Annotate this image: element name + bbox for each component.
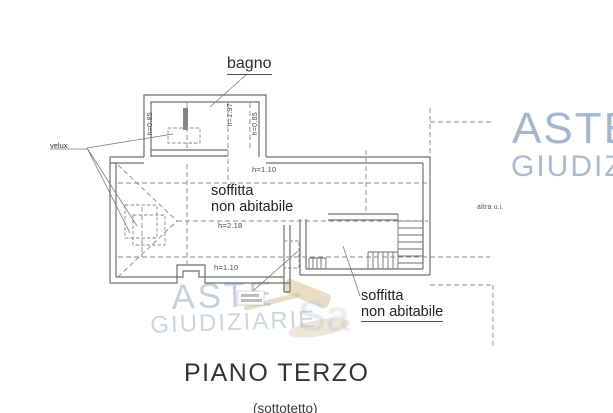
soffitta-main-line2: non abitabile <box>211 199 293 215</box>
velux-label: velux <box>50 141 68 150</box>
bagno-label: bagno <box>227 55 272 75</box>
dim-bagno-left: h=0.85 <box>147 112 154 135</box>
soffitta-right-label: soffitta non abitabile <box>361 288 443 322</box>
dim-attic-center: h=2.18 <box>218 221 242 230</box>
dim-bagno-center: h=1.97 <box>227 103 234 126</box>
dim-upper-right: h=1.10 <box>252 165 276 174</box>
altra-ui-label: altra u.i. <box>477 204 504 211</box>
dim-attic-bottom: h=1.10 <box>214 263 238 272</box>
floor-subtitle: (sottotetto) <box>253 401 318 413</box>
staircase <box>309 214 423 269</box>
floorplan-page: ASTE GIUDIZIARIE ASTE GIUDIZIARIE Sa <box>0 0 613 413</box>
soffitta-main-label: soffitta non abitabile <box>211 183 293 215</box>
dim-bagno-right: h=0.85 <box>252 112 259 135</box>
soffitta-main-line1: soffitta <box>211 183 293 199</box>
floorplan-drawing <box>0 0 613 413</box>
soffitta-right-line1: soffitta <box>361 288 443 304</box>
illegible-annotation <box>238 291 264 305</box>
soffitta-right-line2: non abitabile <box>361 304 443 322</box>
floor-title: PIANO TERZO <box>184 359 370 388</box>
